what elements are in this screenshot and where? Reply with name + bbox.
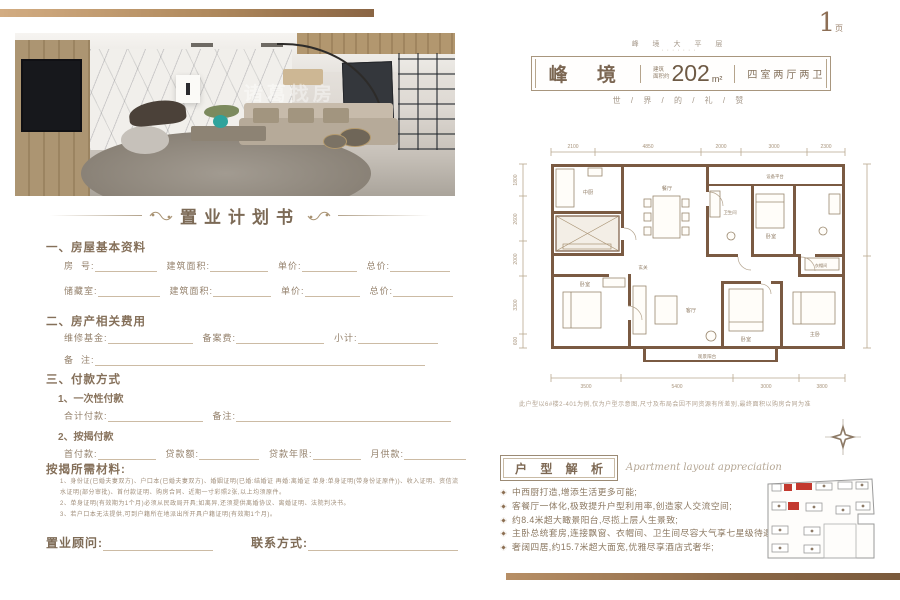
field-label: 房 号:	[64, 259, 95, 272]
field-blank	[95, 356, 425, 366]
diamond-icon	[500, 517, 507, 524]
photo-cushion	[288, 108, 314, 123]
room-labels: 中厨 餐厅 设备平台 卫生间 卧室 玄关 客厅 卧室 卧室 主卧 衣帽间 观景阳…	[580, 173, 827, 360]
field-label: 备案费:	[203, 331, 237, 344]
title-flourish-icon	[307, 211, 331, 221]
svg-text:5400: 5400	[671, 384, 682, 390]
photo-cushion	[253, 108, 279, 123]
materials-line: 1、身份证(已婚夫妻双方)、户口本(已婚夫妻双方)、婚姻证明(已婚:结婚证 再婚…	[60, 477, 462, 499]
title-rule-right	[338, 215, 430, 216]
field-blank	[393, 287, 453, 297]
floor-plan-walls	[551, 164, 845, 362]
diamond-icon	[500, 503, 507, 510]
title-flourish-icon	[149, 211, 173, 221]
field-label: 单价:	[281, 284, 305, 297]
field-blank	[305, 287, 360, 297]
area-unit: m²	[712, 74, 723, 87]
form-footer: 置业顾问: 联系方式:	[46, 534, 468, 551]
svg-text:600: 600	[513, 337, 519, 346]
unit-header-box: 峰 境 建筑面积约 202 m² 四室两厅两卫	[531, 56, 831, 91]
svg-text:客厅: 客厅	[686, 306, 696, 314]
brochure-page: 1页 诸葛找房 置业计划书	[0, 0, 900, 600]
field-blank	[98, 450, 156, 460]
photo-cushion	[323, 108, 349, 123]
form-sub1: 1、一次性付款	[58, 390, 124, 405]
consultant-label: 置业顾问:	[46, 534, 103, 551]
field-blank	[390, 262, 450, 272]
room-configuration: 四室两厅两卫	[747, 66, 825, 81]
field-blank	[313, 450, 361, 460]
page-number-suffix: 页	[835, 24, 843, 33]
analysis-subtitle: Apartment layout appreciation	[626, 462, 782, 473]
page-number-value: 1	[818, 8, 835, 38]
field-label: 贷款额:	[166, 447, 200, 460]
eyebrow-dots: ·······	[530, 47, 830, 54]
diamond-icon	[500, 530, 507, 537]
svg-text:2000: 2000	[715, 144, 726, 150]
photo-coffee-table	[191, 126, 266, 141]
divider	[640, 65, 641, 83]
form-sub2: 2、按揭付款	[58, 428, 114, 443]
svg-text:玄关: 玄关	[638, 264, 648, 271]
field-label: 总价:	[367, 259, 391, 272]
page-number: 1页	[818, 10, 843, 36]
svg-text:3500: 3500	[580, 384, 591, 390]
svg-text:主卧: 主卧	[810, 330, 820, 338]
field-blank	[98, 287, 160, 297]
photo-wall-sconce	[176, 75, 200, 103]
area-value: 202	[671, 60, 709, 87]
field-blank	[404, 450, 466, 460]
field-blank	[236, 334, 324, 344]
site-plan	[760, 466, 886, 573]
photo-window	[398, 53, 455, 151]
tagline: 世 / 界 / 的 / 礼 / 赞	[530, 95, 830, 106]
field-label: 贷款年限:	[269, 447, 313, 460]
svg-text:3000: 3000	[768, 144, 779, 150]
form-row: 维修基金: 备案费: 小计:	[64, 331, 448, 344]
form-row: 房 号: 建筑面积: 单价: 总价:	[64, 259, 460, 272]
materials-lines: 1、身份证(已婚夫妻双方)、户口本(已婚夫妻双方)、婚姻证明(已婚:结婚证 再婚…	[60, 477, 462, 521]
field-blank	[95, 262, 157, 272]
unit-name: 峰 境	[537, 60, 628, 87]
field-label: 储藏室:	[64, 284, 98, 297]
svg-text:餐厅: 餐厅	[662, 184, 672, 192]
form-section3-heading: 三、付款方式	[46, 371, 121, 387]
svg-text:3300: 3300	[513, 299, 519, 310]
form-title: 置业计划书	[180, 203, 300, 228]
gold-accent-bar-top	[0, 9, 374, 17]
field-label: 小计:	[334, 331, 358, 344]
materials-line: 3、若户口本无法提供,可到户籍所在地派出所开具户籍证明(有效期1个月)。	[60, 510, 462, 521]
diamond-icon	[500, 489, 507, 496]
materials-line: 2、单身证明(有效期为1个月)必须从民政局开具;如离异,还须提供离婚协议、离婚证…	[60, 499, 462, 510]
svg-text:卫生间: 卫生间	[723, 209, 736, 216]
living-room-photo: 诸葛找房	[15, 33, 455, 196]
field-blank	[108, 334, 193, 344]
svg-text:3000: 3000	[760, 384, 771, 390]
svg-text:2000: 2000	[513, 253, 519, 264]
field-label: 建筑面积:	[170, 284, 214, 297]
svg-text:卧室: 卧室	[741, 335, 751, 343]
analysis-title: 户 型 解 析	[510, 460, 608, 477]
svg-text:2600: 2600	[513, 213, 519, 224]
field-label: 维修基金:	[64, 331, 108, 344]
field-blank	[108, 412, 203, 422]
svg-text:设备平台: 设备平台	[766, 173, 784, 180]
svg-text:1800: 1800	[513, 174, 519, 185]
svg-text:中厨: 中厨	[583, 188, 593, 196]
photo-ottoman	[121, 126, 169, 154]
field-label: 月供款:	[371, 447, 405, 460]
unit-area: 建筑面积约 202 m²	[653, 60, 722, 87]
field-label: 建筑面积:	[167, 259, 211, 272]
divider	[734, 65, 735, 83]
svg-text:4850: 4850	[642, 144, 653, 150]
form-row: 合计付款: 备注:	[64, 409, 461, 422]
field-label: 备 注:	[64, 353, 95, 366]
field-blank	[213, 287, 271, 297]
elevator-shaft	[556, 216, 619, 251]
floor-plan: 2100 4850 2000 3000 2300 3500 5400 3000 …	[493, 136, 885, 401]
field-blank	[103, 538, 213, 551]
field-blank	[236, 412, 451, 422]
photo-watermark: 诸葛找房	[244, 79, 336, 106]
analysis-title-box: 户 型 解 析	[500, 455, 618, 481]
field-label: 备注:	[213, 409, 237, 422]
form-row: 备 注:	[64, 353, 435, 366]
compass-icon	[824, 418, 862, 461]
field-blank	[358, 334, 438, 344]
photo-tv	[21, 59, 82, 131]
svg-text:2300: 2300	[820, 144, 831, 150]
field-label: 总价:	[370, 284, 394, 297]
form-section1-heading: 一、房屋基本资料	[46, 239, 146, 255]
field-blank	[199, 450, 259, 460]
svg-text:卧室: 卧室	[766, 232, 776, 240]
field-label: 单价:	[278, 259, 302, 272]
form-row: 首付款: 贷款额: 贷款年限: 月供款:	[64, 447, 476, 460]
form-section2-heading: 二、房产相关费用	[46, 313, 146, 329]
svg-text:2100: 2100	[567, 144, 578, 150]
field-blank	[308, 538, 458, 551]
svg-text:卧室: 卧室	[580, 280, 590, 288]
photo-teal-vase	[213, 115, 228, 128]
field-label: 合计付款:	[64, 409, 108, 422]
field-blank	[302, 262, 357, 272]
gold-accent-bar-bottom	[506, 573, 900, 580]
form-row: 储藏室: 建筑面积: 单价: 总价:	[64, 284, 463, 297]
contact-label: 联系方式:	[251, 534, 308, 551]
recessed-light	[191, 43, 213, 47]
svg-text:衣帽间: 衣帽间	[815, 262, 828, 269]
materials-heading: 按揭所需材料:	[46, 461, 126, 477]
title-rule-left	[50, 215, 142, 216]
svg-text:观景阳台: 观景阳台	[698, 353, 717, 360]
field-label: 首付款:	[64, 447, 98, 460]
diamond-icon	[500, 544, 507, 551]
floor-plan-disclaimer: 此户型以6#楼2-401为例,仅为户型示意图,尺寸及布局会因不同资源有所差别,最…	[495, 399, 835, 408]
photo-side-table	[323, 134, 347, 149]
svg-text:3800: 3800	[816, 384, 827, 390]
area-label: 建筑面积约	[653, 67, 670, 80]
field-blank	[210, 262, 268, 272]
form-title-row: 置业计划书	[30, 203, 450, 228]
